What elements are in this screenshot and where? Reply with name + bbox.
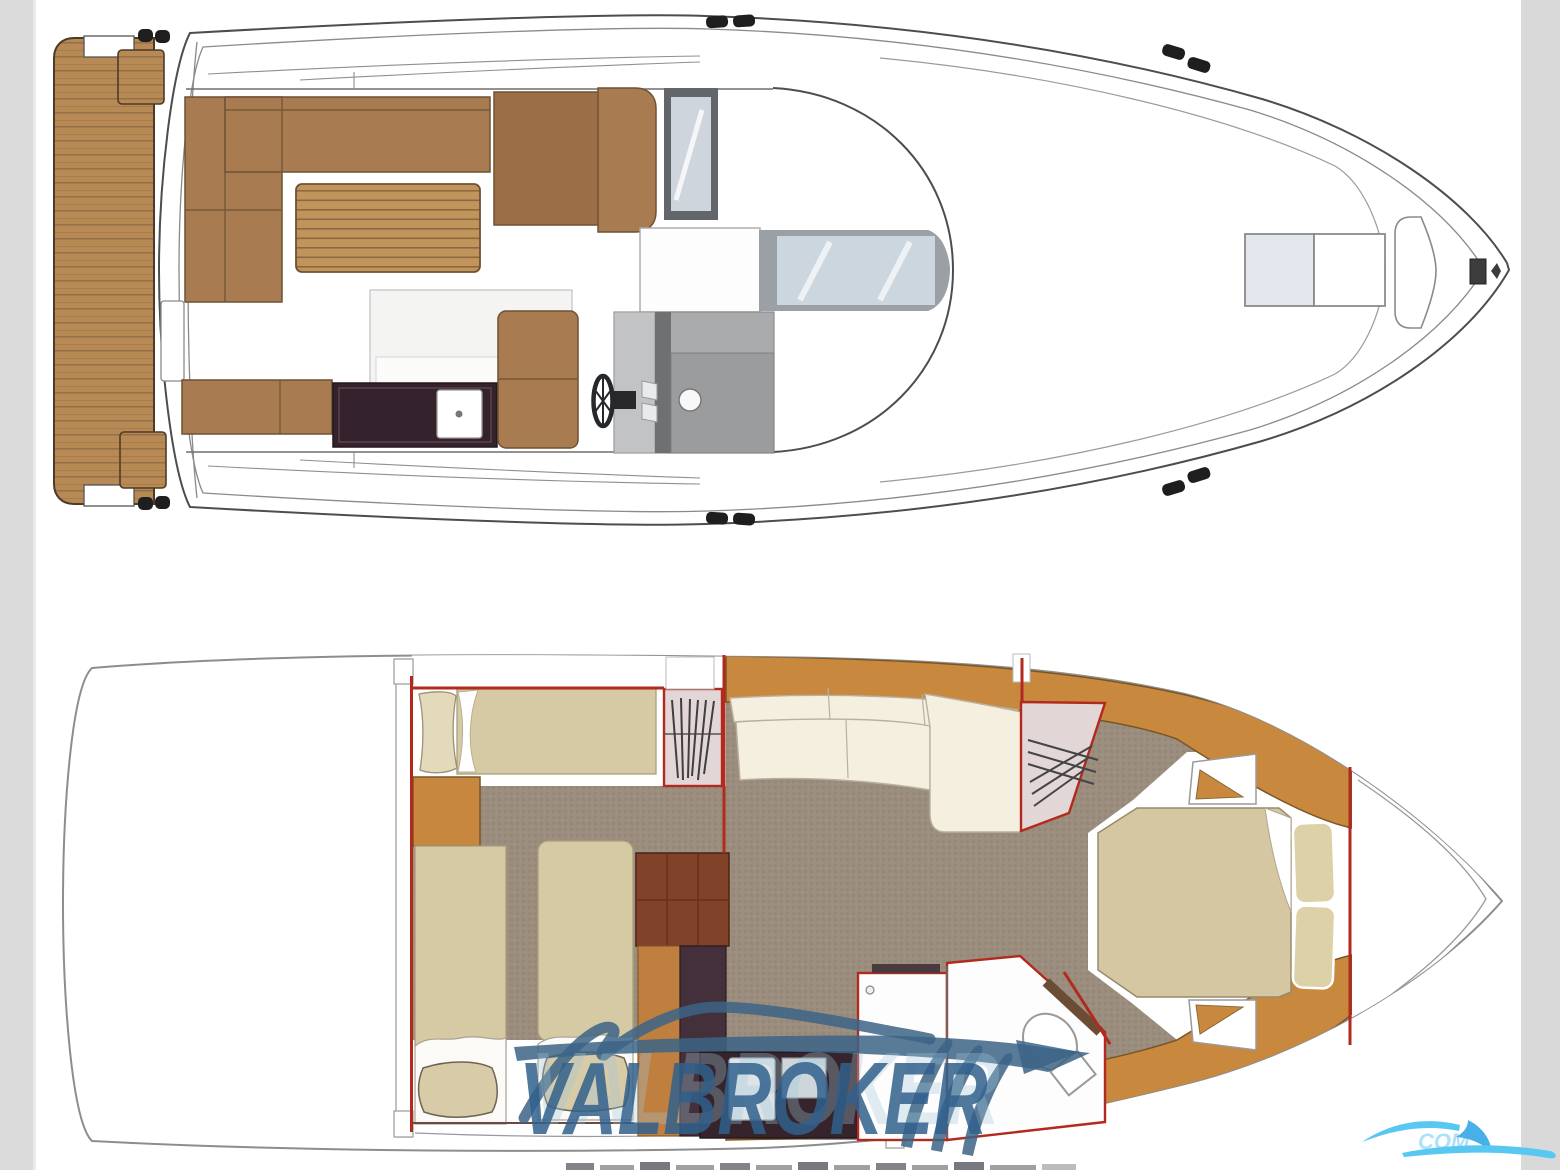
svg-text:VALBROKER: VALBROKER [519, 1041, 988, 1157]
